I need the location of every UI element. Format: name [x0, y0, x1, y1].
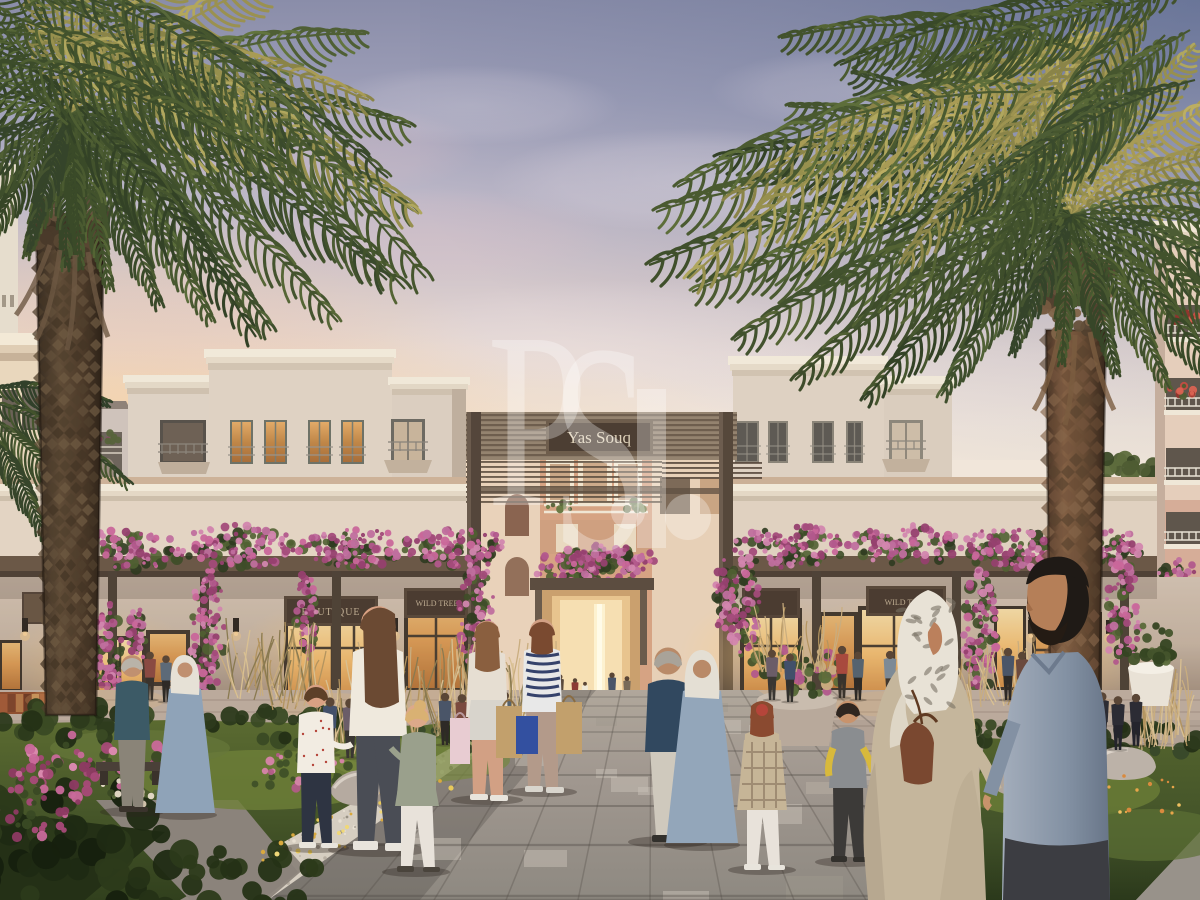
- svg-text:S: S: [551, 282, 651, 614]
